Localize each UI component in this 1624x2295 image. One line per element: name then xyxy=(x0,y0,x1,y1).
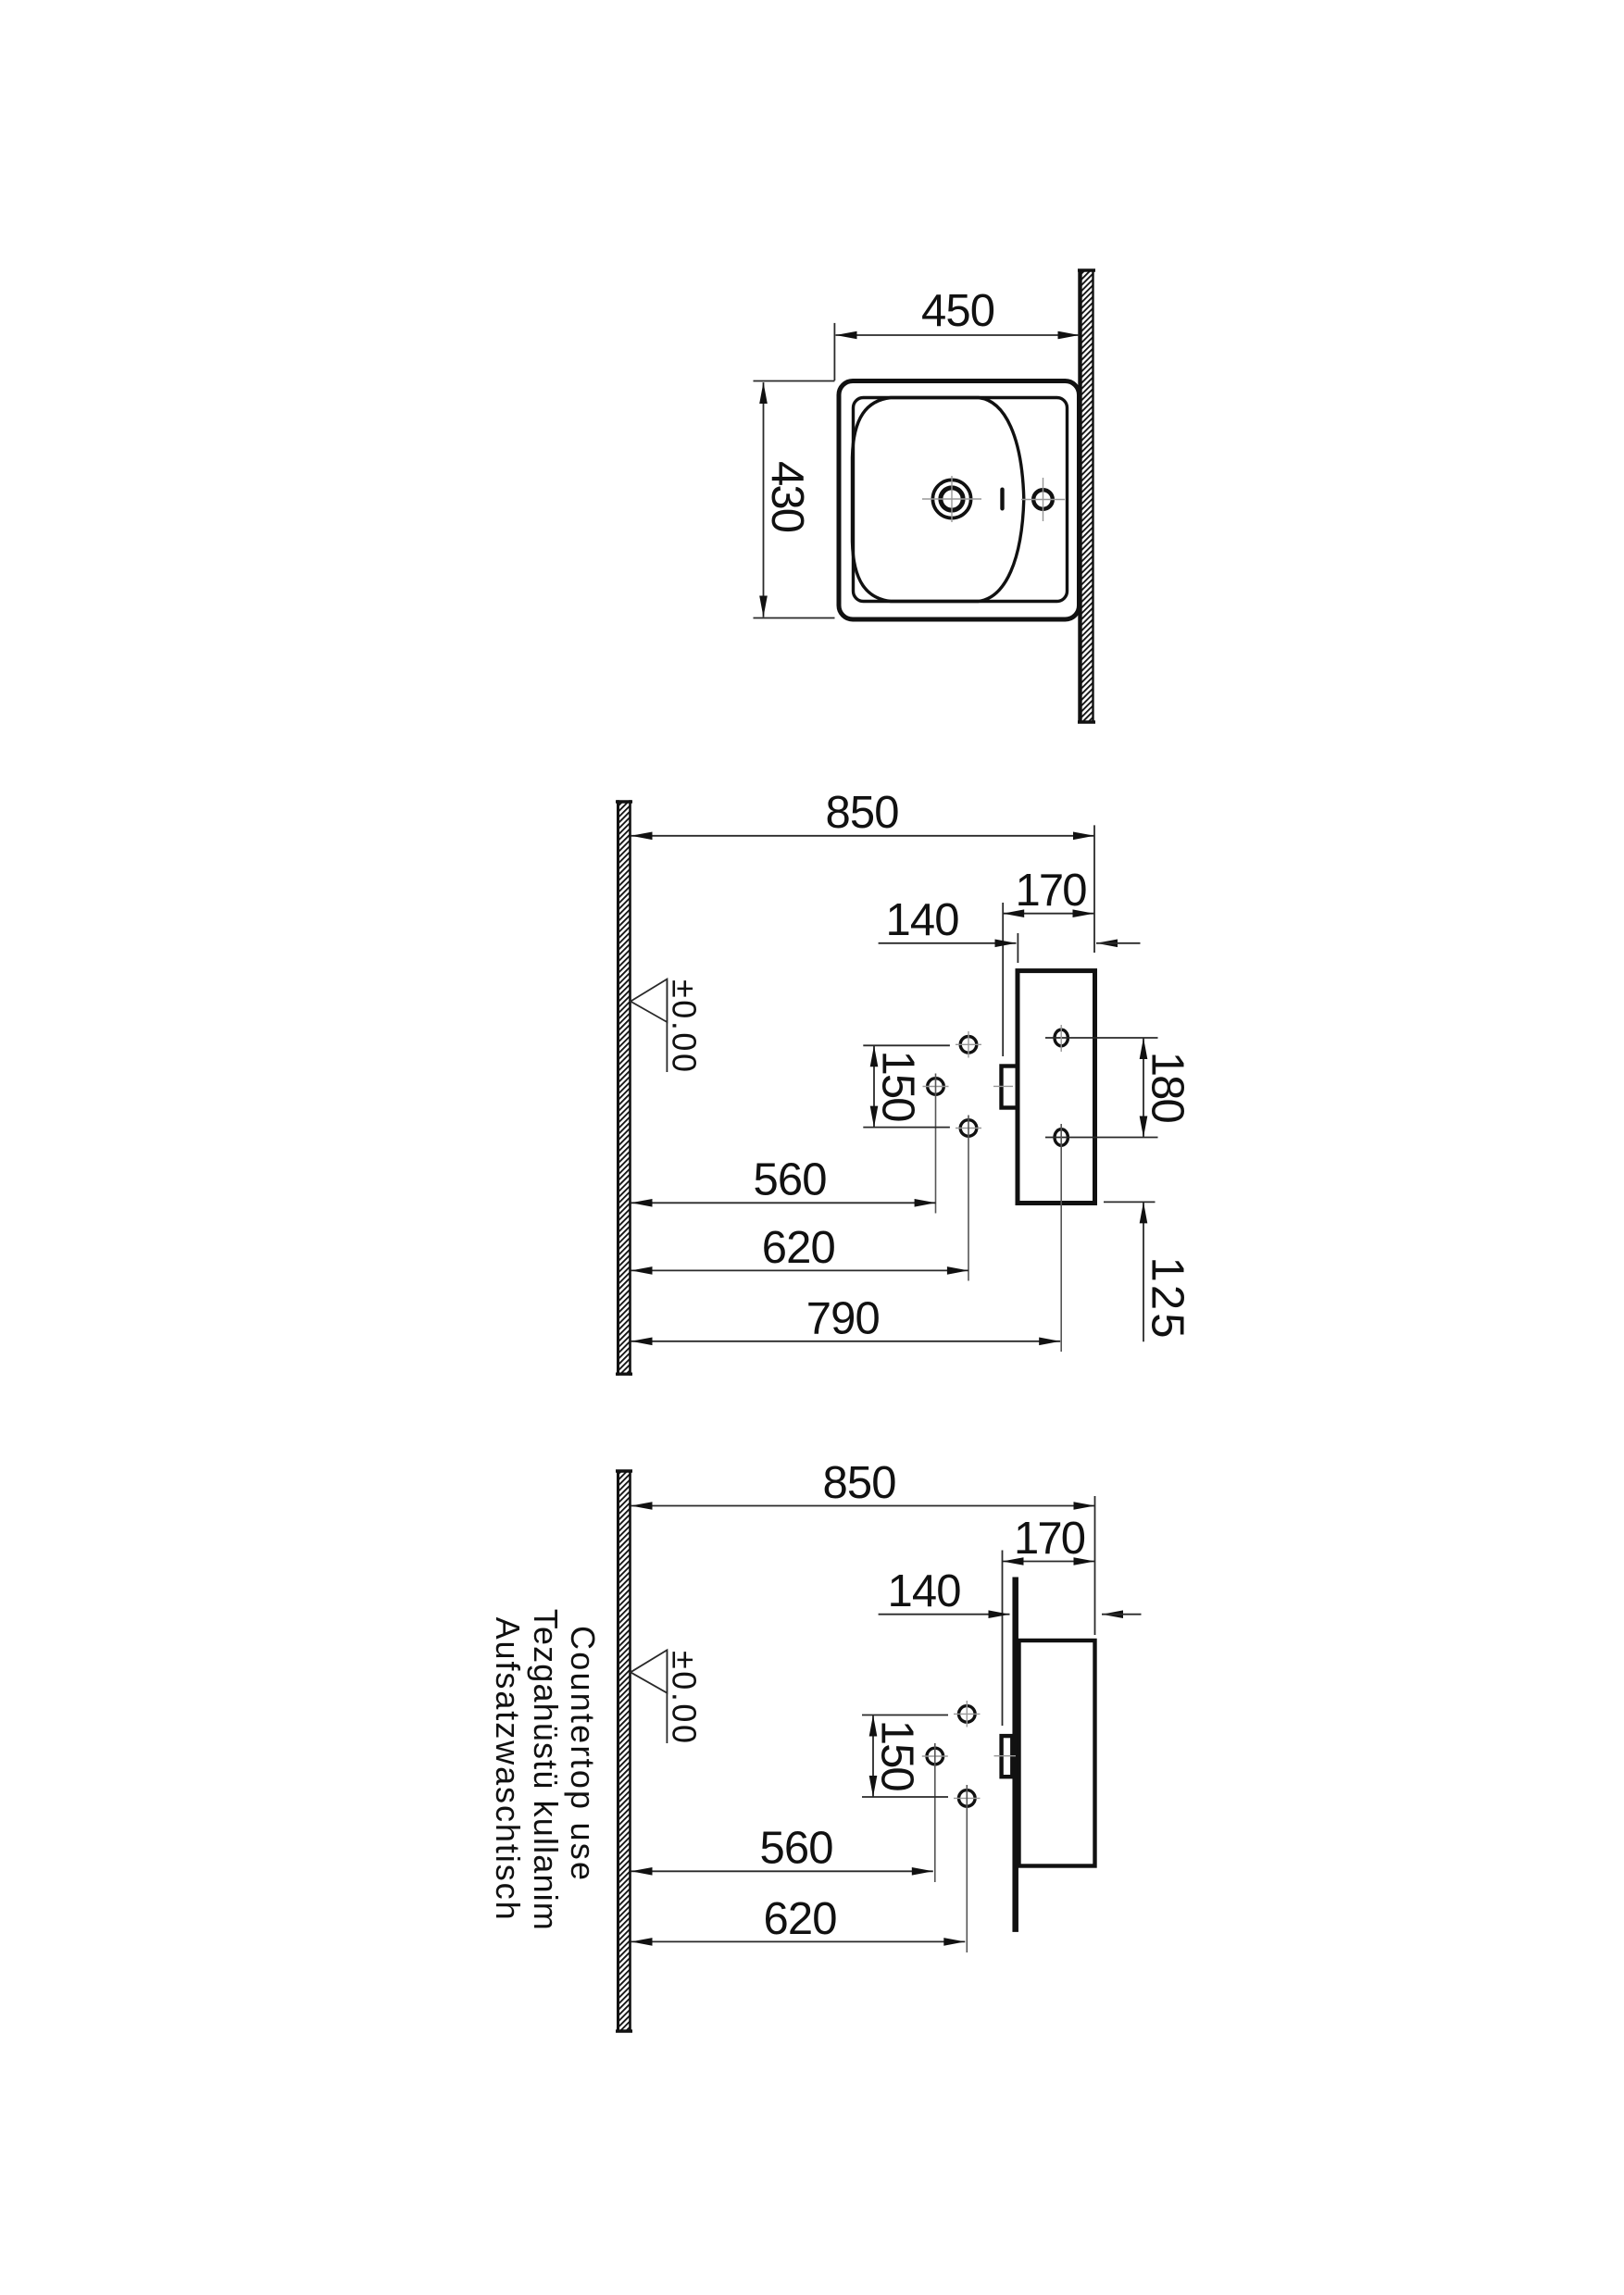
svg-text:790: 790 xyxy=(806,1294,881,1344)
svg-text:Tezgahüstü kullanim: Tezgahüstü kullanim xyxy=(527,1609,565,1930)
svg-text:560: 560 xyxy=(760,1824,834,1874)
svg-text:150: 150 xyxy=(872,1720,922,1792)
svg-text:170: 170 xyxy=(1014,1514,1086,1564)
svg-text:180: 180 xyxy=(1143,1052,1193,1124)
svg-text:850: 850 xyxy=(826,788,900,838)
svg-text:140: 140 xyxy=(888,1566,962,1616)
svg-text:±0.00: ±0.00 xyxy=(666,979,704,1072)
svg-text:140: 140 xyxy=(886,895,960,945)
svg-text:850: 850 xyxy=(823,1458,897,1508)
svg-text:430: 430 xyxy=(762,461,812,533)
svg-text:620: 620 xyxy=(764,1894,838,1944)
svg-text:170: 170 xyxy=(1016,866,1088,916)
svg-text:125: 125 xyxy=(1143,1257,1193,1339)
svg-text:150: 150 xyxy=(873,1051,923,1123)
svg-text:Countertop use: Countertop use xyxy=(564,1626,602,1880)
svg-text:620: 620 xyxy=(762,1223,836,1273)
svg-text:560: 560 xyxy=(754,1155,828,1205)
svg-text:Aufsatzwaschtisch: Aufsatzwaschtisch xyxy=(489,1617,527,1920)
svg-text:±0.00: ±0.00 xyxy=(666,1651,704,1743)
svg-text:450: 450 xyxy=(921,286,995,336)
